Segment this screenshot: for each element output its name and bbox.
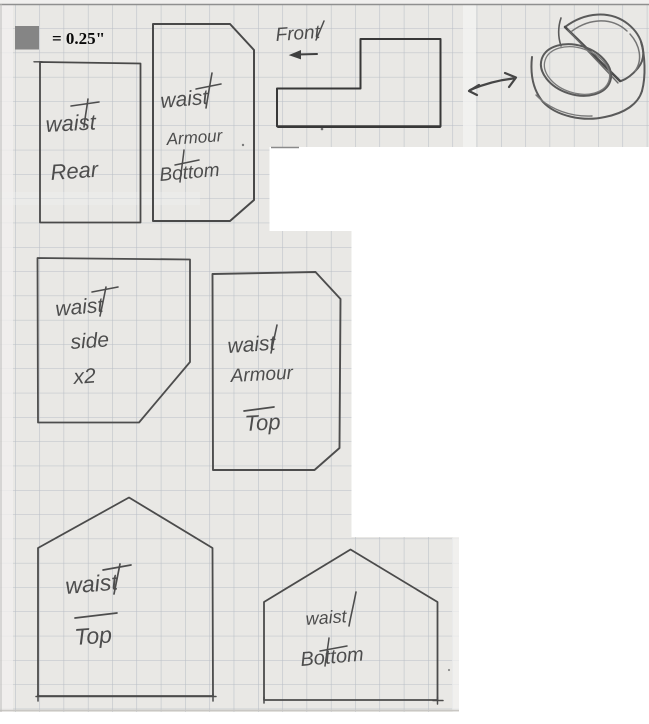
svg-text:waist: waist	[159, 86, 210, 113]
svg-text:Rear: Rear	[50, 157, 101, 185]
svg-text:side: side	[70, 328, 110, 354]
svg-text:Armour: Armour	[229, 363, 294, 387]
svg-text:x2: x2	[72, 364, 97, 389]
svg-text:= 0.25": = 0.25"	[52, 29, 105, 48]
svg-text:Front: Front	[275, 22, 321, 46]
svg-text:waist: waist	[45, 109, 97, 137]
svg-text:Armour: Armour	[165, 126, 224, 149]
svg-text:Top: Top	[74, 621, 113, 650]
svg-text:waist: waist	[227, 332, 277, 358]
svg-text:waist: waist	[64, 568, 120, 599]
svg-text:waist: waist	[54, 294, 105, 321]
svg-text:waist: waist	[305, 606, 348, 629]
svg-text:Top: Top	[244, 409, 281, 436]
